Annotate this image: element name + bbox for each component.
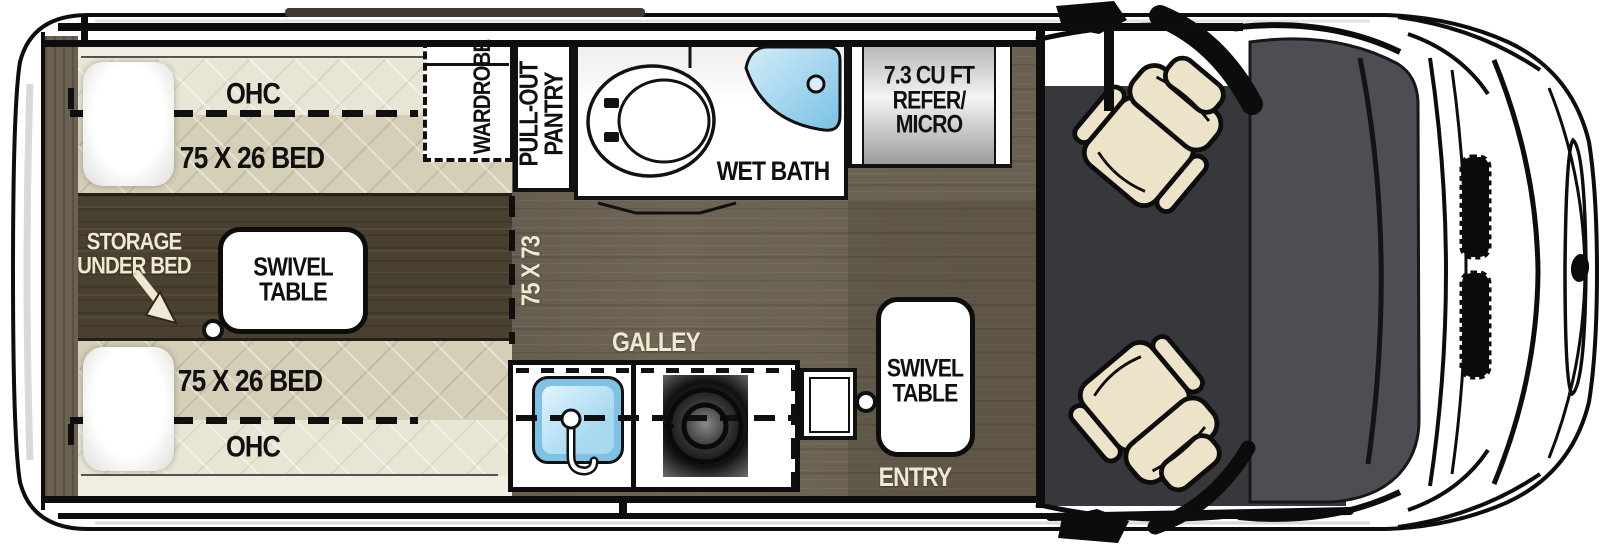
pillar-rear-top [81, 14, 88, 44]
swivel-seat-passenger-icon [1060, 324, 1249, 515]
floorplan-diagram: OHC 75 X 26 BED WARDROBE PULL-OUT PANTRY… [0, 0, 1600, 544]
bed-top-dashed-hook [68, 88, 74, 112]
hood-line-1 [1430, 58, 1446, 486]
label-storage-line1: STORAGE [77, 230, 191, 254]
cab-floor [1044, 86, 1346, 506]
bed-bottom-frame-line [81, 474, 498, 476]
label-pantry-line2: PANTRY [542, 62, 567, 167]
label-entry: ENTRY [879, 464, 952, 490]
label-ohc-bottom: OHC [226, 432, 280, 461]
label-bed-bottom-size: 75 X 26 BED [178, 366, 322, 396]
hood-vent-2 [1462, 273, 1489, 377]
label-refer-line1: 7.3 CU FT [884, 63, 974, 88]
fender-top-outer [1398, 17, 1540, 70]
label-refer-line2: REFER/ [884, 88, 974, 113]
stove-icon [663, 375, 748, 477]
label-bed-top-size: 75 X 26 BED [180, 143, 324, 173]
swivel-seat-driver-icon [1064, 33, 1253, 224]
wall-cab-partition [1036, 26, 1045, 508]
refrigerator-left-trim [852, 44, 864, 164]
label-swivel-table-rear: SWIVEL TABLE [253, 255, 333, 306]
galley-dashed-line-vertical [791, 370, 797, 488]
fender-bottom-outer [1398, 474, 1540, 527]
fender-bottom-inner [1408, 450, 1488, 510]
label-wardrobe: WARDROBE [471, 40, 495, 154]
hood-line-2 [1452, 70, 1466, 474]
bumper-arc [1549, 88, 1585, 458]
label-wet-bath: WET BATH [717, 158, 830, 184]
wardrobe-shelf-line [427, 63, 509, 66]
hood-vent-1 [1462, 157, 1489, 257]
wiper-icon [1360, 58, 1381, 464]
label-refer-line3: MICRO [884, 112, 974, 137]
body-shading-left [27, 84, 30, 460]
fender-top-inner [1408, 34, 1488, 94]
label-swivel-front-line1: SWIVEL [887, 357, 963, 382]
grille-trim [1565, 140, 1586, 394]
body-line-bottom-front [1238, 492, 1400, 519]
label-storage-line2: UNDER BED [77, 254, 191, 278]
bed-bottom-headboard [78, 476, 512, 496]
label-swivel-rear-line2: TABLE [253, 280, 333, 305]
front-badge-icon [1570, 253, 1591, 283]
body-line-top [58, 23, 1243, 31]
bed-bottom-foot-line [78, 338, 512, 341]
wall-top [41, 40, 1044, 47]
body-line-top-front [1238, 25, 1400, 52]
label-swivel-table-front: SWIVEL TABLE [887, 357, 963, 406]
label-dimension: 75 X 73 [518, 236, 543, 306]
galley-counter-hatch [516, 368, 792, 373]
bed-top-foot-line [78, 193, 512, 196]
counter-extension [800, 368, 857, 440]
refrigerator-right-trim [994, 44, 1010, 164]
label-storage-under-bed: STORAGE UNDER BED [77, 230, 191, 277]
label-refrigerator: 7.3 CU FT REFER/ MICRO [884, 63, 974, 137]
pillow-top-icon [83, 62, 174, 186]
pillar-bottom-connector [619, 496, 627, 519]
roof-vent-bump [285, 8, 645, 17]
body-line-bottom [58, 513, 1243, 519]
label-swivel-front-line2: TABLE [887, 381, 963, 406]
windshield [1250, 39, 1419, 502]
wardrobe-cabinet [423, 40, 513, 162]
wall-bottom [41, 496, 1044, 503]
label-ohc-top: OHC [226, 79, 280, 108]
hood-front-edge [1494, 60, 1538, 484]
galley-counter-divider [631, 363, 636, 489]
label-pantry: PULL-OUT PANTRY [517, 62, 568, 167]
label-galley: GALLEY [612, 329, 700, 355]
bed-bottom-dashed-hook [68, 424, 74, 448]
dimension-dashed-line [509, 196, 515, 344]
pillar-b-top [1104, 23, 1114, 111]
wall-left [41, 32, 45, 510]
pillow-bottom-icon [83, 347, 174, 471]
counter-extension-inner [809, 377, 850, 433]
